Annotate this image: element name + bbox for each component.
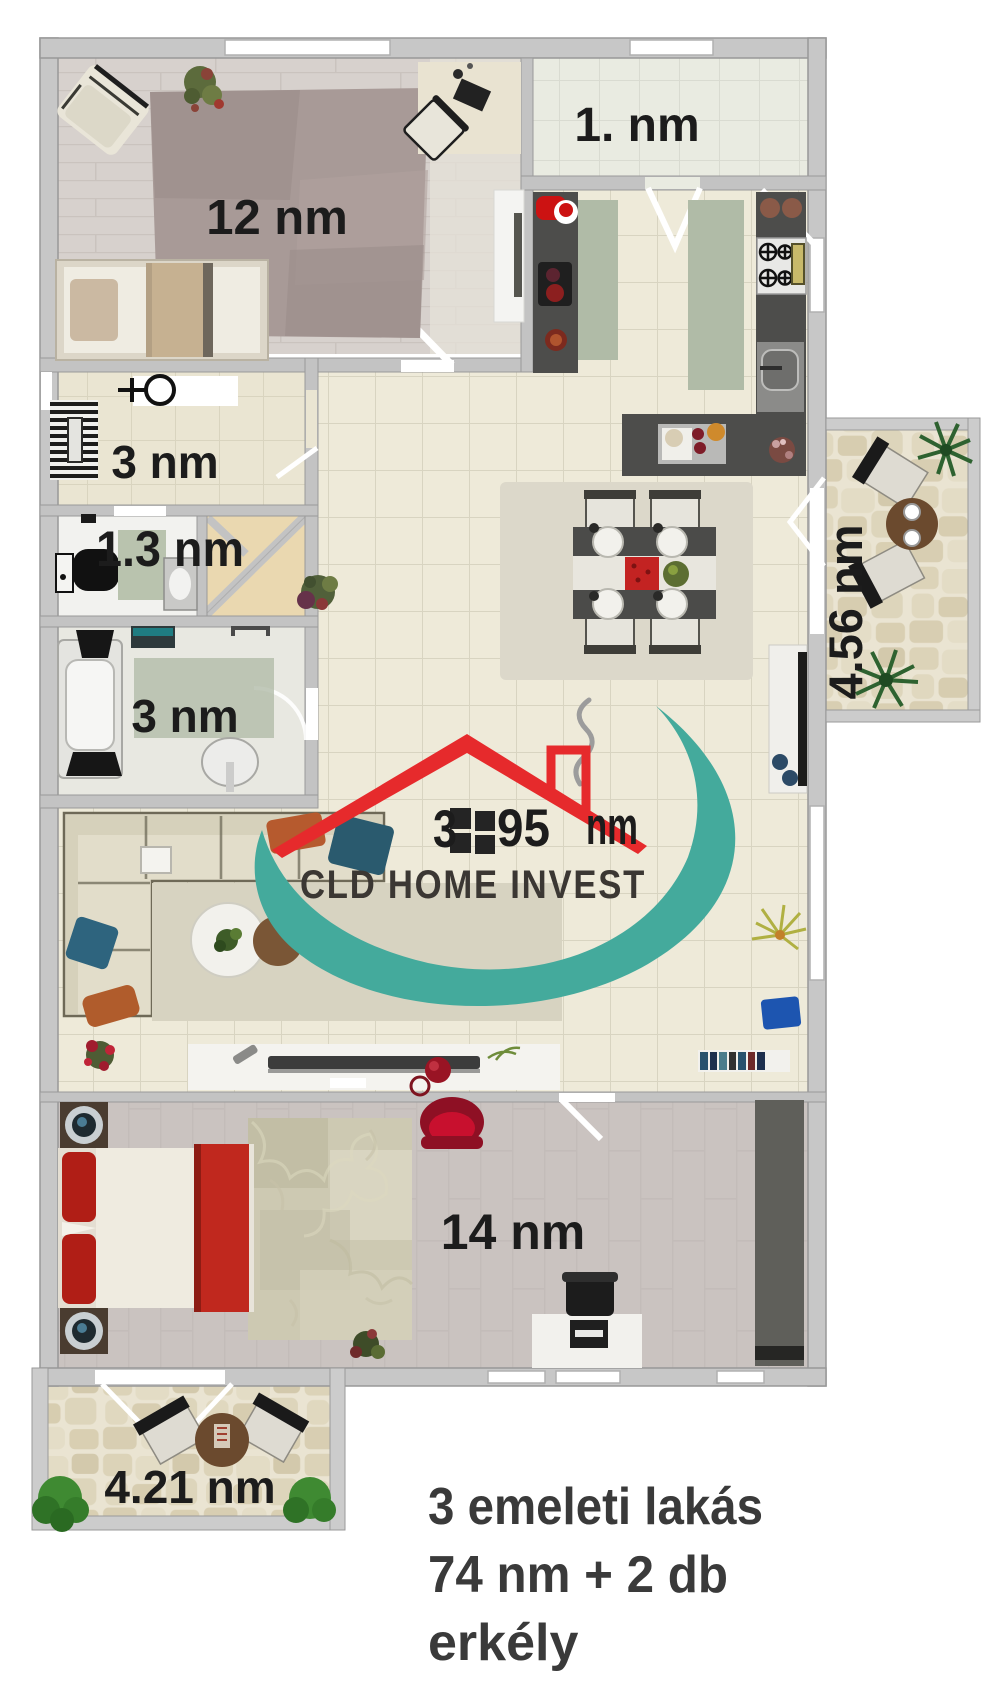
svg-text:95: 95 <box>497 799 550 858</box>
svg-text:74 nm + 2 db: 74 nm + 2 db <box>428 1546 728 1604</box>
svg-text:3 nm: 3 nm <box>131 690 238 742</box>
svg-text:CLD HOME INVEST: CLD HOME INVEST <box>300 863 646 907</box>
svg-text:erkély: erkély <box>428 1614 578 1672</box>
svg-text:nm: nm <box>586 797 638 856</box>
svg-text:3 nm: 3 nm <box>111 436 218 488</box>
svg-text:4.21 nm: 4.21 nm <box>104 1461 275 1513</box>
svg-text:3 emeleti lakás: 3 emeleti lakás <box>428 1478 763 1536</box>
svg-text:14 nm: 14 nm <box>441 1204 586 1260</box>
svg-text:4.56 nm: 4.56 nm <box>819 524 872 699</box>
svg-text:1.3 nm: 1.3 nm <box>96 521 244 577</box>
svg-text:12 nm: 12 nm <box>206 191 348 245</box>
svg-text:3: 3 <box>433 800 457 859</box>
svg-text:1. nm: 1. nm <box>574 99 699 152</box>
